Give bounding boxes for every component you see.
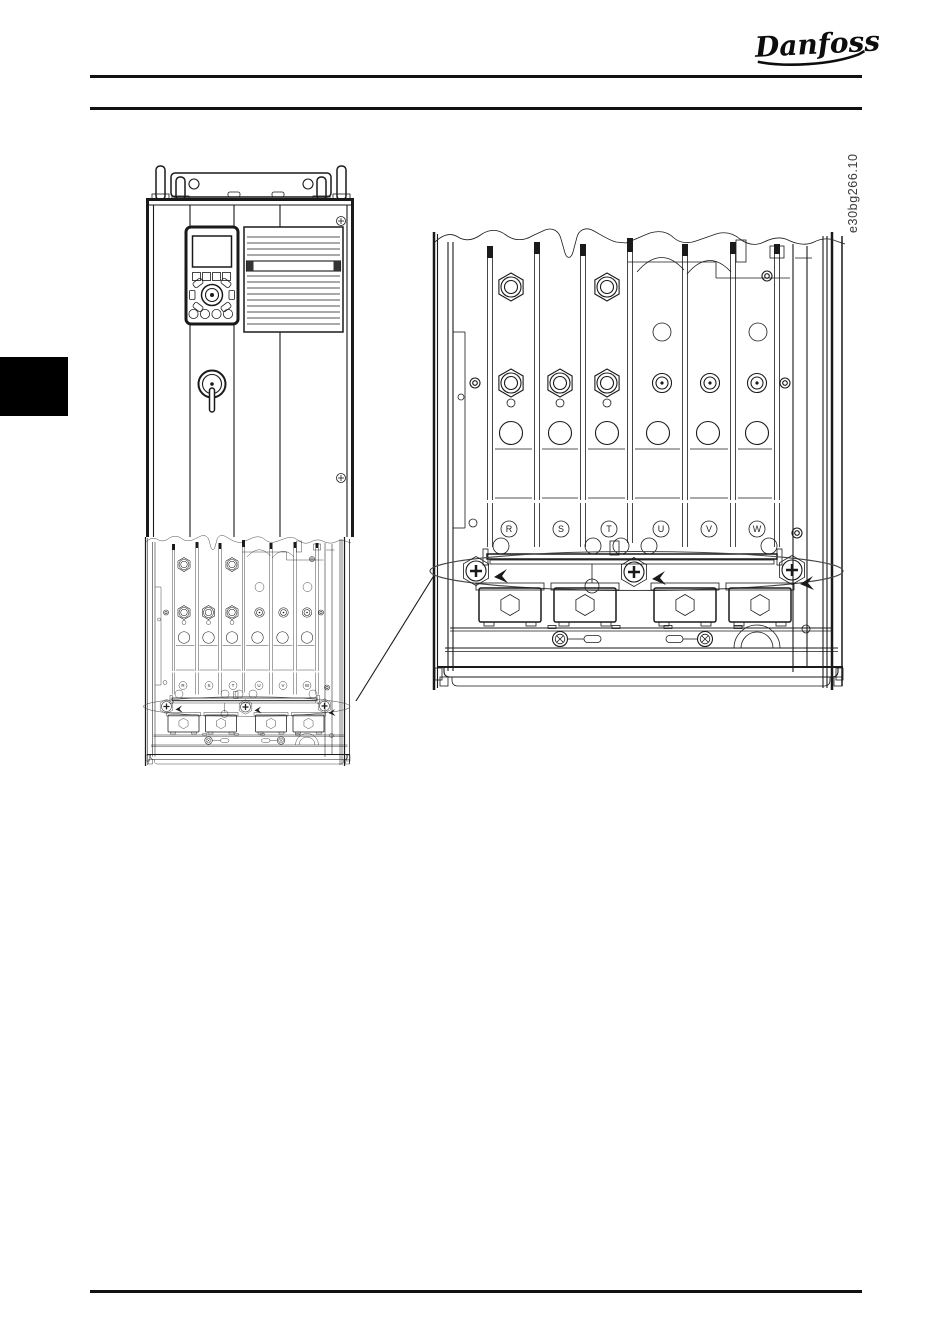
enclosure-bottom-edge xyxy=(438,667,843,686)
terminal-label-r: R xyxy=(506,524,513,534)
mains-disconnect-knob[interactable] xyxy=(199,371,226,413)
figure-code-label: e30bg266.10 xyxy=(846,153,860,233)
output-mounting-plate xyxy=(628,240,790,341)
busbar-bolts xyxy=(499,271,790,445)
terminal-label-t: T xyxy=(606,524,612,534)
drive-lower-terminal-section xyxy=(144,535,352,766)
logo-text: Danfoss xyxy=(753,24,881,64)
terminal-block-row xyxy=(476,583,794,626)
figure-drawing: Danfoss e30bg266.10 xyxy=(0,0,950,1344)
enclosure-left-frame xyxy=(434,232,480,690)
terminal-label-u: U xyxy=(658,524,665,534)
terminal-label-s: S xyxy=(558,524,564,534)
terminal-detail-view: R S T U V W xyxy=(430,229,845,690)
cable-clamp-rail xyxy=(445,625,838,652)
manual-page: Danfoss e30bg266.10 xyxy=(0,0,950,1344)
break-line xyxy=(434,229,845,258)
callout-leader-line xyxy=(356,577,433,701)
fixing-screws xyxy=(463,556,814,591)
lifting-studs xyxy=(152,166,350,200)
busbar-separators xyxy=(487,238,780,547)
ventilation-grille xyxy=(244,227,343,332)
drive-front-view xyxy=(146,166,354,537)
danfoss-logo: Danfoss xyxy=(753,24,881,67)
terminal-labels: R S T U V W xyxy=(501,521,765,537)
enclosure-right-frame xyxy=(792,232,843,690)
ground-busbar-rail xyxy=(483,538,782,593)
terminal-label-v: V xyxy=(706,524,712,534)
local-control-panel xyxy=(186,227,238,324)
terminal-label-w: W xyxy=(753,524,762,534)
top-mounting-plate xyxy=(171,173,331,197)
